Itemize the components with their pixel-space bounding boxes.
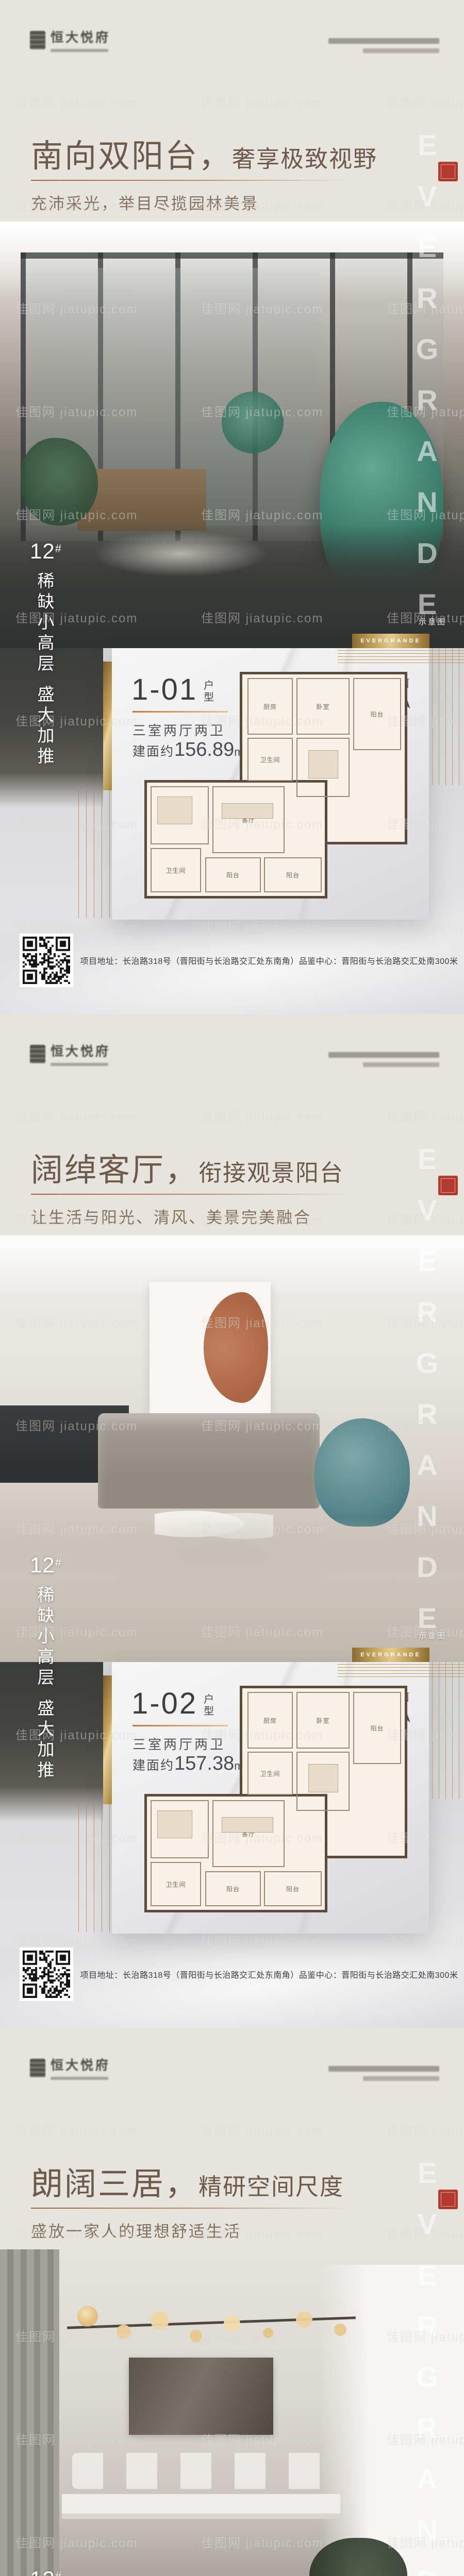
schematic-note: 示意图 xyxy=(419,616,446,627)
room-bathroom: 卫生间 xyxy=(247,738,293,781)
room-kitchen: 厨房 xyxy=(247,678,293,735)
room-balcony: 阳台 xyxy=(353,1692,401,1764)
evergrande-vertical-watermark: EVERGRANDE xyxy=(410,2157,444,2576)
panel-title-strong: 阔绰客厅， xyxy=(31,1153,198,1188)
building-badge-line2: 盛大加推 xyxy=(32,685,57,768)
photo-layer xyxy=(67,2316,356,2329)
watermark-text: 佳图网 jiatupic.com xyxy=(15,1107,138,1125)
photo-layer xyxy=(129,2358,273,2435)
panel-title: 朗阔三居，精研空间尺度 xyxy=(31,2158,344,2204)
photo-layer xyxy=(72,2453,330,2489)
room-label: 阳台 xyxy=(286,1885,300,1893)
watermark-text: 佳图网 jiatupic.com xyxy=(387,1107,464,1125)
watermark-text: 佳图网 jiatupic.com xyxy=(15,93,138,111)
building-number: 12 xyxy=(30,539,55,563)
building-badge-line1: 稀缺小高层 xyxy=(32,1586,57,1689)
room-label: 阳台 xyxy=(370,1724,384,1733)
interior-photo xyxy=(0,2249,464,2576)
floorplan-drawing: 厨房 卧室 阳台 卫生间 餐厅 卧室 客厅 卫生间 阳台 阳台 xyxy=(144,1686,410,1912)
brand-logo: 恒大悦府 xyxy=(30,2059,110,2080)
building-number-hash: # xyxy=(55,2570,61,2576)
panel-title-rest: 精研空间尺度 xyxy=(198,2174,344,2200)
room-label: 卫生间 xyxy=(260,755,280,764)
room-label: 厨房 xyxy=(263,702,277,711)
header-right-text-blur xyxy=(328,2066,439,2081)
header-right-text-blur xyxy=(328,1052,439,1067)
building-badge-line2: 盛大加推 xyxy=(32,1699,57,1782)
evergrande-vertical-watermark: EVERGRANDE xyxy=(410,129,444,654)
panel-title-rest: 奢享极致视野 xyxy=(232,146,377,172)
gold-line-decor-right xyxy=(432,1662,463,1799)
room-label: 卫生间 xyxy=(165,1880,186,1889)
furniture-table xyxy=(308,750,338,778)
header-right-line1-blur xyxy=(328,1052,439,1058)
gold-accent-bar xyxy=(103,662,112,790)
panel-title: 阔绰客厅，衔接观景阳台 xyxy=(31,1144,344,1190)
room-label: 阳台 xyxy=(226,1885,240,1893)
brand-logo-icon xyxy=(30,1045,45,1063)
title-divider xyxy=(31,1194,351,1195)
building-number: 12 xyxy=(30,2567,55,2576)
room-balcony: 阳台 xyxy=(353,678,401,750)
building-number-row: 12# xyxy=(30,539,156,564)
room-bedroom: 卧室 xyxy=(296,678,350,735)
brand-logo-icon xyxy=(30,2059,45,2077)
room-label: 卫生间 xyxy=(260,1769,280,1778)
building-number-hash: # xyxy=(55,1556,61,1569)
room-bedroom: 卧室 xyxy=(296,1692,350,1749)
brand-name: 恒大悦府 xyxy=(51,2059,110,2073)
room-label: 阳台 xyxy=(286,871,300,879)
building-number-row: 12# xyxy=(30,1553,156,1578)
room-label: 卧室 xyxy=(316,1716,329,1725)
gold-line-decor-left xyxy=(78,789,110,918)
title-divider xyxy=(31,2208,351,2209)
brand-logo: 恒大悦府 xyxy=(30,31,110,52)
room-label: 卧室 xyxy=(316,702,329,711)
photo-layer xyxy=(222,392,284,453)
building-number-row: 12# xyxy=(30,2567,156,2576)
poster-panel: 恒大悦府 朗阔三居，精研空间尺度 盛放一家人的理想舒适生活 EVERGRANDE xyxy=(0,2028,464,2576)
brand-logo-text-group: 恒大悦府 xyxy=(51,1045,110,1066)
photo-layer xyxy=(314,1418,410,1527)
evergrande-vertical-watermark: EVERGRANDE xyxy=(410,1143,444,1668)
evergrande-gold-badge: EVERGRANDE xyxy=(352,1648,429,1662)
room-label: 厨房 xyxy=(263,1716,277,1725)
watermark-text: 佳图网 jiatupic.com xyxy=(387,93,464,111)
brand-logo-text-group: 恒大悦府 xyxy=(51,31,110,52)
watermark-text: 佳图网 jiatupic.com xyxy=(201,2121,323,2139)
header-right-line1-blur xyxy=(328,2066,439,2072)
qr-code xyxy=(20,1947,73,2001)
furniture-sofa xyxy=(222,1817,273,1833)
building-badge: 12# 稀缺小高层 盛大加推 xyxy=(29,2567,156,2576)
brand-logo-text-group: 恒大悦府 xyxy=(51,2059,110,2080)
room-balcony: 阳台 xyxy=(264,1871,322,1906)
panel-title: 南向双阳台，奢享极致视野 xyxy=(31,130,377,176)
furniture-table xyxy=(308,1764,338,1792)
header-right-line2-blur xyxy=(363,1062,439,1067)
panel-subtitle: 充沛采光，举目尽揽园林美景 xyxy=(31,191,259,214)
furniture-bed xyxy=(157,1810,192,1838)
room-living: 客厅 xyxy=(212,786,285,853)
photo-layer xyxy=(0,2249,59,2576)
building-number: 12 xyxy=(30,1553,55,1577)
furniture-sofa xyxy=(222,803,273,819)
room-balcony: 阳台 xyxy=(264,857,322,892)
footer-address: 项目地址：长治路318号（晋阳街与长治路交汇处东南角）品鉴中心：晋阳街与长治路交… xyxy=(77,1968,461,1980)
brand-name-subtext-blur xyxy=(51,2077,108,2080)
room-living: 客厅 xyxy=(212,1800,285,1867)
poster-panel: 恒大悦府 南向双阳台，奢享极致视野 充沛采光，举目尽揽园林美景 EVERGRAN… xyxy=(0,0,464,1014)
header-right-text-blur xyxy=(328,38,439,53)
qr-code xyxy=(20,934,73,987)
photo-layer xyxy=(98,1413,320,1509)
brand-name: 恒大悦府 xyxy=(51,31,110,45)
panel-subtitle: 让生活与阳光、清风、美景完美融合 xyxy=(31,1205,311,1228)
poster-panel: 恒大悦府 阔绰客厅，衔接观景阳台 让生活与阳光、清风、美景完美融合 EVERGR… xyxy=(0,1014,464,2028)
brand-logo: 恒大悦府 xyxy=(30,1045,110,1066)
building-number-hash: # xyxy=(55,542,61,555)
brand-logo-icon xyxy=(30,31,45,49)
header-right-line2-blur xyxy=(363,2076,439,2081)
room-balcony: 阳台 xyxy=(205,1871,261,1906)
qr-code-image xyxy=(23,1951,70,1998)
floorplan-card: 1-02 户型 三室两厅两卫 建面约157.38m² N 厨房 卧室 阳台 卫生… xyxy=(112,1662,429,1934)
poster-canvas: 恒大悦府 南向双阳台，奢享极致视野 充沛采光，举目尽揽园林美景 EVERGRAN… xyxy=(0,0,464,2576)
watermark-text: 佳图网 jiatupic.com xyxy=(201,1107,323,1125)
room-bathroom: 卫生间 xyxy=(151,848,201,892)
header-right-line2-blur xyxy=(363,48,439,53)
room-bathroom: 卫生间 xyxy=(151,1862,201,1906)
brand-name: 恒大悦府 xyxy=(51,1045,110,1059)
panel-title-rest: 衔接观景阳台 xyxy=(198,1160,344,1186)
room-kitchen: 厨房 xyxy=(247,1692,293,1749)
room-balcony: 阳台 xyxy=(205,857,261,892)
watermark-text: 佳图网 jiatupic.com xyxy=(387,2121,464,2139)
floorplan-drawing: 厨房 卧室 阳台 卫生间 餐厅 卧室 客厅 卫生间 阳台 阳台 xyxy=(144,672,410,899)
gold-accent-bar xyxy=(103,1675,112,1804)
watermark-text: 佳图网 jiatupic.com xyxy=(15,2121,138,2139)
title-divider xyxy=(31,180,351,181)
gold-line-decor-left xyxy=(78,1803,110,1932)
floorplan-card: 1-01 户型 三室两厅两卫 建面约156.89m² N 厨房 卧室 阳台 卫生… xyxy=(112,648,429,920)
brand-name-subtext-blur xyxy=(51,49,108,52)
room-label: 阳台 xyxy=(226,871,240,879)
room-label: 阳台 xyxy=(370,710,384,719)
gold-line-decor-right xyxy=(432,648,463,785)
building-badge-line1: 稀缺小高层 xyxy=(32,572,57,675)
photo-layer xyxy=(77,2306,98,2327)
panel-subtitle: 盛放一家人的理想舒适生活 xyxy=(31,2218,241,2242)
room-label: 卫生间 xyxy=(165,866,186,875)
schematic-note: 示意图 xyxy=(419,1630,446,1641)
panel-title-strong: 南向双阳台， xyxy=(31,139,232,174)
evergrande-gold-badge: EVERGRANDE xyxy=(352,634,429,648)
furniture-bed xyxy=(157,796,192,824)
footer-address: 项目地址：长治路318号（晋阳街与长治路交汇处东南角）品鉴中心：晋阳街与长治路交… xyxy=(77,954,461,967)
panel-title-strong: 朗阔三居， xyxy=(31,2166,198,2202)
header-right-line1-blur xyxy=(328,38,439,44)
watermark-text: 佳图网 jiatupic.com xyxy=(201,93,323,111)
qr-code-image xyxy=(23,937,70,984)
brand-name-subtext-blur xyxy=(51,1063,108,1066)
room-bathroom: 卫生间 xyxy=(247,1752,293,1795)
